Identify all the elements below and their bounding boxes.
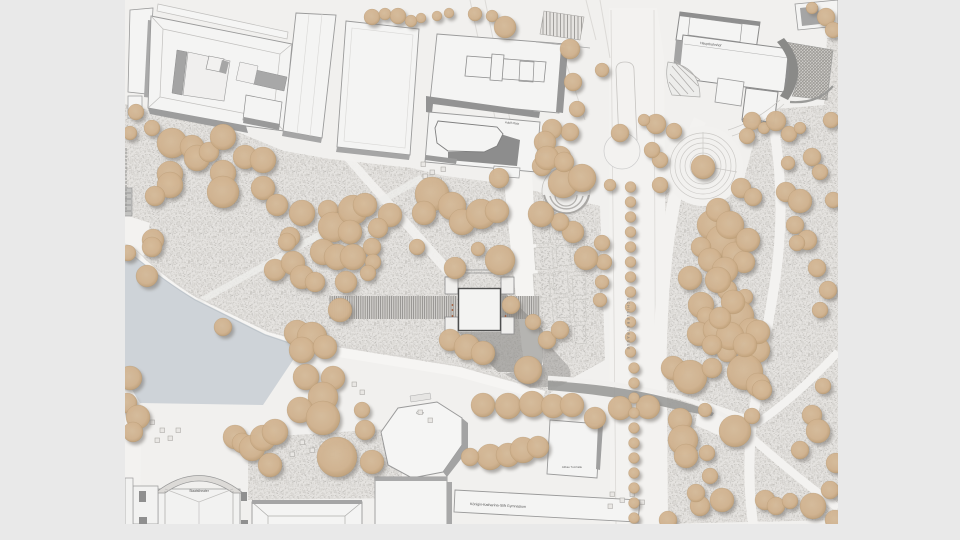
svg-text:Altbau Turnhalle: Altbau Turnhalle <box>562 465 583 469</box>
svg-text:Staatstheater: Staatstheater <box>189 489 210 493</box>
svg-text:SCHILLERSTRASSE: SCHILLERSTRASSE <box>626 298 630 351</box>
